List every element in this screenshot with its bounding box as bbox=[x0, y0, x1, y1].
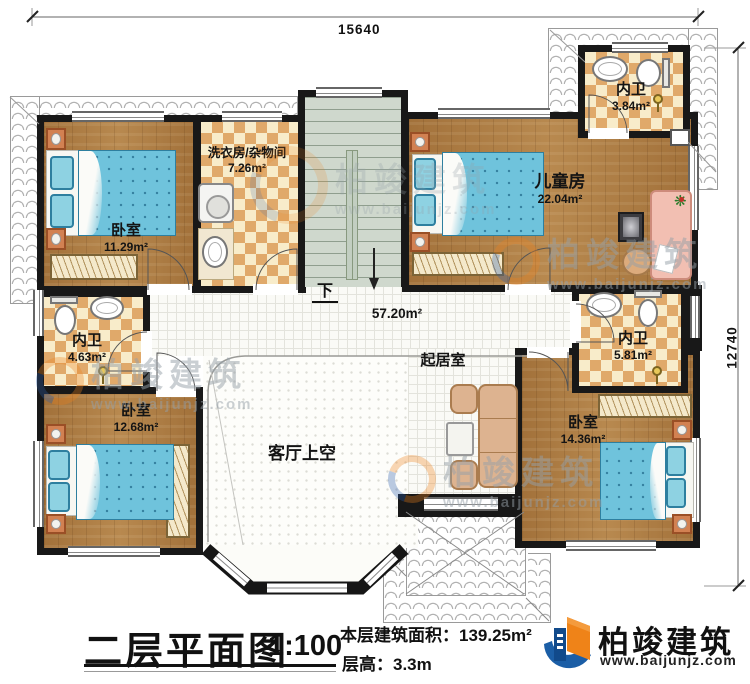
armchair-icon bbox=[450, 384, 478, 414]
window-stairs bbox=[316, 87, 382, 98]
nightstand-icon bbox=[410, 232, 430, 252]
watermark: 柏竣建筑 www.baijunjz.com bbox=[250, 146, 496, 224]
label-kids-room: 儿童房 22.04m² bbox=[512, 172, 608, 207]
sink-icon bbox=[586, 292, 622, 318]
plant-icon: ❋ bbox=[674, 192, 687, 210]
title-underline bbox=[84, 664, 336, 672]
plan-scale: 1:100 bbox=[268, 630, 342, 663]
window-bedroom-tl bbox=[72, 111, 164, 122]
watermark-logo-icon bbox=[28, 349, 92, 413]
brand-website: www.baijunjz.com bbox=[600, 652, 737, 668]
floor-height-line: 层高：3.3m bbox=[342, 650, 432, 675]
window-bath-left bbox=[33, 290, 44, 336]
watermark-logo-icon bbox=[380, 447, 444, 511]
label-hallway-area: 57.20m² bbox=[352, 306, 442, 322]
shower-head-icon bbox=[652, 366, 662, 376]
window-kids-top bbox=[438, 108, 550, 119]
toilet-icon bbox=[638, 299, 658, 327]
sink-icon bbox=[90, 296, 124, 320]
wardrobe-icon bbox=[412, 252, 504, 276]
window-right-strip bbox=[690, 296, 700, 338]
pillow-icon bbox=[666, 478, 686, 508]
floorplan-canvas: ❋ bbox=[0, 0, 750, 684]
nightstand-icon bbox=[46, 514, 66, 534]
nightstand-icon bbox=[672, 420, 692, 440]
stairs-down-label: 下 bbox=[312, 277, 338, 303]
sink-icon bbox=[202, 236, 228, 268]
window-laundry bbox=[222, 111, 282, 122]
floor-area-label: 本层建筑面积： bbox=[340, 626, 459, 645]
label-bedroom-top-left: 卧室 11.29m² bbox=[88, 222, 164, 254]
label-bath-top: 内卫 3.84m² bbox=[600, 81, 662, 113]
watermark: 柏竣建筑 www.baijunjz.com bbox=[36, 348, 252, 413]
roof-porch-inner bbox=[406, 510, 526, 596]
nightstand-icon bbox=[46, 424, 66, 444]
nightstand-icon bbox=[672, 514, 692, 534]
window-bath-top bbox=[612, 42, 668, 53]
label-living-void: 客厅上空 bbox=[248, 444, 356, 464]
nightstand-icon bbox=[46, 128, 66, 150]
window-bedroom-br-bottom bbox=[566, 540, 656, 551]
window-bedroom-bl-left bbox=[33, 441, 44, 527]
dimension-right-label: 12740 bbox=[725, 316, 740, 380]
window-bedroom-bl-bottom bbox=[68, 546, 160, 557]
flue-shaft bbox=[670, 129, 690, 146]
mattress-icon bbox=[76, 444, 174, 520]
watermark-logo-icon bbox=[484, 229, 548, 293]
roof-left-band bbox=[10, 96, 40, 304]
label-bedroom-bottom-right: 卧室 14.36m² bbox=[545, 414, 621, 446]
watermark: 柏竣建筑 www.baijunjz.com bbox=[388, 446, 604, 511]
toilet-icon bbox=[54, 305, 76, 335]
pillow-icon bbox=[48, 450, 70, 480]
wardrobe-icon bbox=[50, 254, 138, 280]
floor-area-value: 139.25m² bbox=[459, 626, 532, 645]
label-bath-right: 内卫 5.81m² bbox=[602, 330, 664, 362]
mattress-icon bbox=[600, 442, 666, 520]
floor-height-label: 层高： bbox=[342, 655, 393, 674]
watermark: 柏竣建筑 www.baijunjz.com bbox=[492, 228, 708, 293]
dimension-top-label: 15640 bbox=[338, 22, 381, 37]
label-sitting-area: 起居室 bbox=[408, 352, 478, 370]
pillow-icon bbox=[50, 156, 74, 190]
toilet-icon bbox=[50, 296, 78, 304]
washing-machine-icon bbox=[198, 183, 234, 223]
nightstand-icon bbox=[46, 228, 66, 250]
pillow-icon bbox=[666, 446, 686, 476]
pillow-icon bbox=[48, 482, 70, 512]
pillow-icon bbox=[50, 194, 74, 228]
floor-height-value: 3.3m bbox=[393, 655, 432, 674]
brand-logo-icon bbox=[540, 614, 594, 677]
floor-area-line: 本层建筑面积：139.25m² bbox=[340, 621, 532, 646]
sink-icon bbox=[592, 56, 628, 82]
toilet-icon bbox=[662, 58, 670, 88]
watermark-logo-icon bbox=[237, 133, 341, 237]
